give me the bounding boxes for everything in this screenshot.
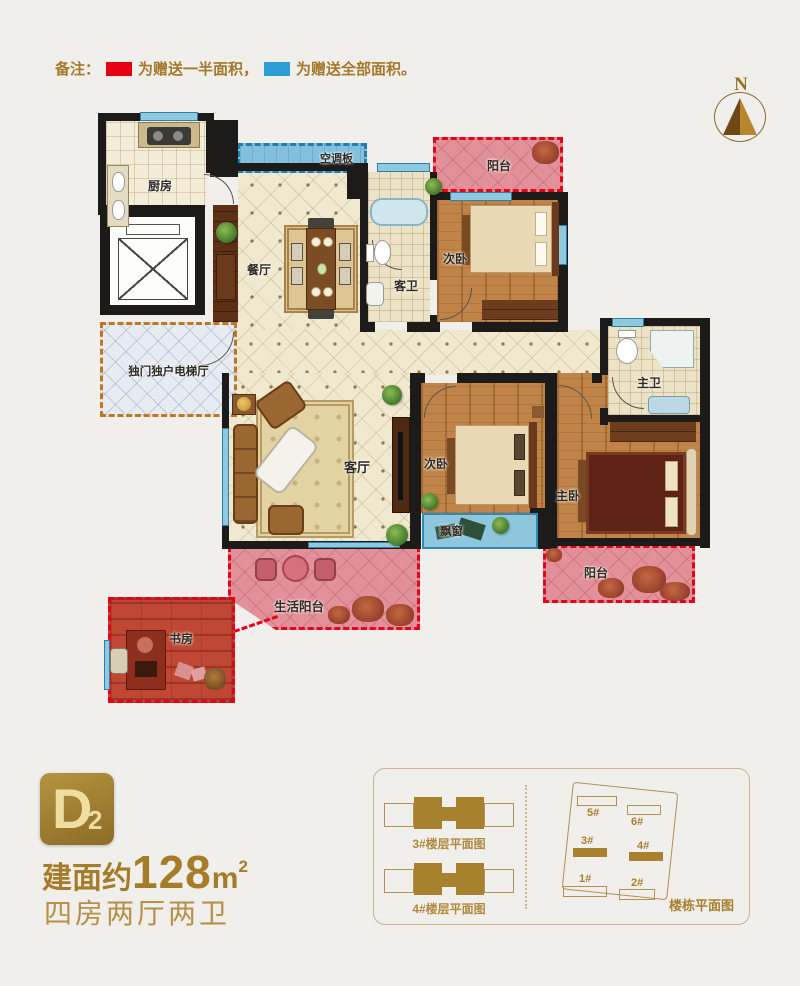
plate xyxy=(311,287,321,297)
building-core xyxy=(414,863,442,895)
unit-letter: D xyxy=(52,775,92,843)
toilet-tank xyxy=(366,244,374,262)
master-bedroom-label: 主卧 xyxy=(556,487,580,504)
kitchen-sink-counter xyxy=(107,165,129,227)
bedroom-top-label: 次卧 xyxy=(443,250,467,267)
desk-items xyxy=(135,661,157,677)
kitchen-window xyxy=(140,112,198,121)
wall xyxy=(98,113,106,215)
kitchen-label: 厨房 xyxy=(148,177,172,194)
wall xyxy=(407,322,440,332)
floor3-label: 3#楼层平面图 xyxy=(384,835,514,852)
toilet xyxy=(374,240,391,265)
patio-chair xyxy=(255,558,277,581)
plant xyxy=(386,524,408,546)
living-window xyxy=(222,428,229,526)
plate xyxy=(311,237,321,247)
burner xyxy=(173,131,183,141)
flowers xyxy=(386,604,414,626)
study-window xyxy=(104,640,110,690)
plate xyxy=(323,287,333,297)
flowers xyxy=(532,141,559,164)
burner xyxy=(153,131,163,141)
area-value: 128 xyxy=(132,845,212,899)
plant xyxy=(216,222,237,243)
site-building-3 xyxy=(573,848,607,857)
building-wing xyxy=(484,803,514,827)
balcony-top-label: 阳台 xyxy=(487,157,511,174)
door-arc xyxy=(204,174,234,204)
sink xyxy=(112,172,125,192)
building-wing xyxy=(384,869,414,893)
sink xyxy=(112,200,125,220)
master-bath-window xyxy=(612,318,644,327)
plate xyxy=(323,237,333,247)
dining-label: 餐厅 xyxy=(247,261,271,278)
area-line: 建面约 128 m 2 xyxy=(42,845,248,899)
desk-lamp xyxy=(137,637,153,653)
headboard xyxy=(552,202,559,276)
plant-pot xyxy=(204,668,226,690)
bed xyxy=(455,425,529,505)
building-core xyxy=(442,873,456,887)
dining-chair xyxy=(291,243,303,261)
lamp xyxy=(237,397,251,411)
balcony-slider-window xyxy=(308,542,400,548)
wardrobe xyxy=(482,300,558,320)
flowers xyxy=(598,578,624,598)
pillow xyxy=(665,497,678,527)
sink xyxy=(648,396,690,414)
plant xyxy=(421,493,438,510)
site-building-4-label: 4# xyxy=(637,840,649,852)
round-table xyxy=(282,555,309,582)
building-wing xyxy=(484,869,514,893)
building-wing xyxy=(384,803,414,827)
dining-chair xyxy=(339,243,351,261)
wall xyxy=(363,322,375,332)
flowers xyxy=(546,548,562,562)
plant xyxy=(425,178,442,195)
toilet xyxy=(616,338,638,364)
toilet-tank xyxy=(618,330,636,338)
site-building-1 xyxy=(563,886,607,897)
wall xyxy=(700,318,710,548)
ac-panel-label: 空调板 xyxy=(320,150,353,166)
hallway-floor xyxy=(237,330,600,375)
dining-table xyxy=(306,228,336,310)
pillow xyxy=(535,242,547,266)
living-label: 客厅 xyxy=(344,457,370,476)
site-building-5-label: 5# xyxy=(587,807,599,819)
unit-badge: D 2 xyxy=(40,773,114,845)
building-core xyxy=(456,797,484,829)
area-unit: m xyxy=(212,862,239,896)
nightstand xyxy=(532,406,544,418)
master-bath-label: 主卫 xyxy=(637,374,661,391)
tv xyxy=(398,432,403,500)
flowers xyxy=(328,606,350,624)
floor4-label: 4#楼层平面图 xyxy=(384,900,514,917)
bedroom-mid-label: 次卧 xyxy=(424,455,448,472)
pillow xyxy=(665,461,678,491)
headboard xyxy=(686,448,697,536)
wall xyxy=(600,326,608,375)
guest-bath-window xyxy=(377,163,430,172)
wall xyxy=(347,163,360,199)
plans-divider xyxy=(525,785,527,909)
bed-bench xyxy=(447,438,455,494)
pillow xyxy=(514,470,525,496)
wall xyxy=(410,383,421,549)
guest-bath-label: 客卫 xyxy=(394,277,418,294)
sink xyxy=(366,282,384,306)
pillow xyxy=(514,434,525,460)
site-building-6 xyxy=(627,805,661,815)
desk-chair xyxy=(110,648,128,674)
area-exponent: 2 xyxy=(238,857,247,877)
wall xyxy=(210,120,238,177)
elevator-cab xyxy=(110,217,195,305)
bed xyxy=(470,205,552,273)
site-building-2-label: 2# xyxy=(631,877,643,889)
patio-chair xyxy=(314,558,336,581)
floor4-diagram xyxy=(384,861,514,897)
plans-box: 3#楼层平面图 4#楼层平面图 5# 6# 3# 4# 1# 2# 楼栋平面图 xyxy=(373,768,750,925)
building-core xyxy=(442,807,456,821)
tv-cabinet xyxy=(392,417,410,513)
floorplan-page: { "legend": { "prefix": "备注：", "half": "… xyxy=(0,0,800,986)
site-plan-label: 楼栋平面图 xyxy=(669,895,734,914)
plate xyxy=(317,263,327,275)
kitchen-counter xyxy=(138,122,200,148)
life-balcony-label: 生活阳台 xyxy=(274,596,324,615)
unit-number: 2 xyxy=(88,805,102,836)
site-building-1-label: 1# xyxy=(579,873,591,885)
bathtub xyxy=(370,198,428,226)
wall xyxy=(605,415,700,422)
bedroom-top-side-window xyxy=(558,225,567,265)
flowers xyxy=(660,582,690,601)
rooms-text: 四房两厅两卫 xyxy=(44,892,230,932)
wall xyxy=(457,373,545,383)
building-core xyxy=(414,797,442,829)
balcony-bottom-label: 阳台 xyxy=(584,564,608,581)
site-building-6-label: 6# xyxy=(631,816,643,828)
wall xyxy=(472,322,568,332)
floorplan-canvas: 厨房 餐厅 空调板 阳台 次卧 客卫 独门独户电梯厅 客厅 次卧 主卫 主卧 飘… xyxy=(0,0,800,760)
wardrobe xyxy=(610,422,696,442)
console-cabinet xyxy=(216,254,236,300)
floor3-diagram xyxy=(384,795,514,831)
area-prefix: 建面约 xyxy=(42,853,132,897)
flowers xyxy=(352,596,384,622)
plant xyxy=(492,517,509,534)
wall xyxy=(545,373,557,549)
armchair xyxy=(268,505,304,535)
elevator-door xyxy=(126,224,180,235)
dining-chair xyxy=(339,267,351,285)
dining-chair xyxy=(291,267,303,285)
elevator-x-mark xyxy=(118,238,188,300)
bed xyxy=(586,452,686,534)
wall xyxy=(557,538,700,546)
bedroom-top-window xyxy=(450,192,512,201)
plant xyxy=(382,385,402,405)
wall xyxy=(410,373,425,383)
site-building-5 xyxy=(577,796,617,806)
site-building-4 xyxy=(629,852,663,861)
bay-window-label: 飘窗 xyxy=(440,523,463,539)
elevator-hall-label: 独门独户电梯厅 xyxy=(100,363,237,379)
site-building-2 xyxy=(619,889,655,900)
pillow xyxy=(535,212,547,236)
site-building-3-label: 3# xyxy=(581,835,593,847)
desk xyxy=(126,630,166,690)
building-core xyxy=(456,863,484,895)
headboard xyxy=(529,422,537,508)
study-label: 书房 xyxy=(169,630,193,647)
wall xyxy=(592,373,602,383)
